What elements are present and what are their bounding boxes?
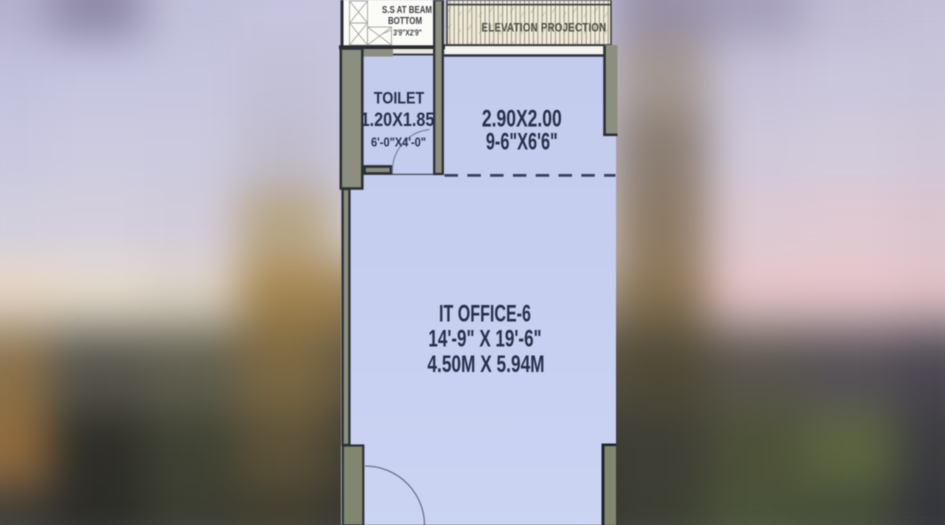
svg-text:BOTTOM: BOTTOM: [388, 15, 422, 26]
svg-text:TOILET: TOILET: [374, 89, 425, 107]
svg-text:14'-9" X 19'-6": 14'-9" X 19'-6": [428, 326, 541, 353]
svg-text:9-6"X6'6": 9-6"X6'6": [486, 129, 558, 156]
svg-text:3'9"X2'9": 3'9"X2'9": [393, 28, 422, 38]
svg-text:IT OFFICE-6: IT OFFICE-6: [439, 302, 531, 328]
svg-text:S.S AT BEAM: S.S AT BEAM: [382, 4, 432, 15]
svg-text:4.50M X 5.94M: 4.50M X 5.94M: [427, 351, 544, 377]
svg-text:ELEVATION PROJECTION: ELEVATION PROJECTION: [482, 22, 607, 35]
svg-text:6'-0"X4'-0": 6'-0"X4'-0": [371, 135, 426, 150]
svg-text:1.20X1.85: 1.20X1.85: [361, 109, 435, 131]
